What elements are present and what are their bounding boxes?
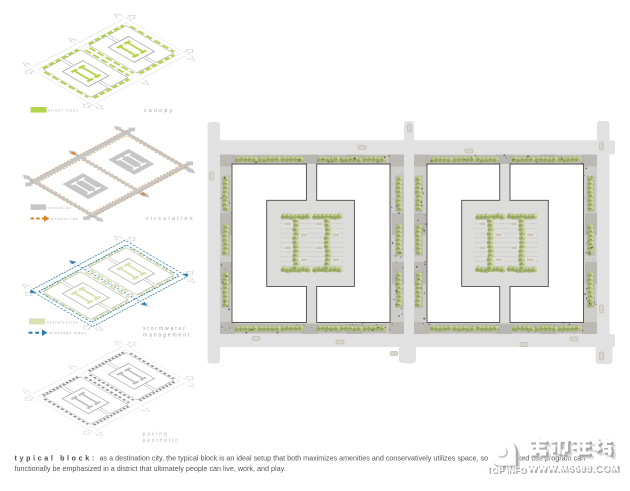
svg-text:bioretention: bioretention bbox=[47, 320, 79, 324]
svg-text:circulation: circulation bbox=[146, 216, 195, 222]
svg-text:drainage ways: drainage ways bbox=[50, 331, 87, 335]
svg-text:stormwater: stormwater bbox=[143, 326, 187, 332]
svg-text:TOP INFO: TOP INFO bbox=[486, 465, 526, 475]
svg-text:functionally be emphasized in: functionally be emphasized in a district… bbox=[15, 464, 286, 473]
svg-text:WWW.M6699.COM: WWW.M6699.COM bbox=[527, 463, 618, 474]
svg-text:pedestrian: pedestrian bbox=[51, 217, 79, 221]
svg-text:management: management bbox=[143, 333, 191, 339]
svg-text:paving: paving bbox=[143, 432, 169, 438]
svg-text:street trees: street trees bbox=[48, 109, 79, 113]
svg-text:canopy: canopy bbox=[144, 108, 175, 114]
svg-text:vehicular: vehicular bbox=[48, 206, 72, 210]
svg-text:aesthetic: aesthetic bbox=[143, 438, 180, 444]
svg-text:typical block:: typical block: bbox=[15, 454, 97, 463]
